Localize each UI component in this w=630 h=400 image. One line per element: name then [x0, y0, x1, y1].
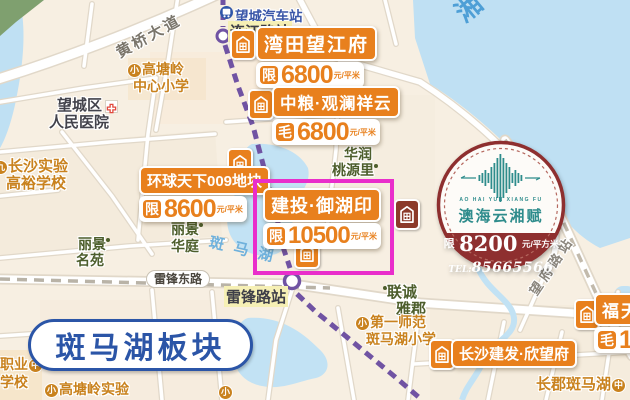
promo-brand-name: 澳海云湘赋	[435, 205, 567, 226]
poi-hospital-line1: 望城区	[57, 97, 102, 114]
poi-lijing-mingyuan-line1: 丽景	[78, 236, 110, 252]
region-badge: 斑马湖板块	[28, 319, 253, 371]
building-icon	[248, 89, 274, 120]
listing-name: 中粮·观澜祥云	[272, 86, 400, 118]
price-value: 1	[619, 329, 630, 351]
price-value: 8600	[164, 198, 216, 220]
poi-dot	[199, 223, 203, 227]
primary-school-icon: 小	[127, 63, 142, 78]
poi-diyishifan-line2: 斑马湖小学	[366, 331, 436, 348]
station-label-leifeng: 雷锋路站	[224, 286, 288, 307]
promo-badge: AO HAI YUN XIANG FU 澳海云湘赋 限 8200 元/平方米 T…	[435, 138, 567, 274]
poi-lijing-huating-line2: 华庭	[171, 238, 199, 254]
middle-school-icon: 中	[611, 378, 626, 393]
nine-year-school-icon: 九	[0, 160, 8, 175]
map-canvas: 黄桥大道 湘 斑马湖 望府路站 望城汽车站 连江路站 雷锋东路 雷锋路站 小高塘…	[0, 0, 630, 400]
listing-name: 环球天下009地块	[139, 166, 270, 195]
road-label-leifengdong: 雷锋东路	[146, 270, 210, 288]
listing-price: 毛 1	[594, 327, 630, 353]
price-unit: 元/平米	[351, 232, 377, 241]
price-unit: 元/平米	[350, 128, 376, 137]
promo-brand-en: AO HAI YUN XIANG FU	[435, 197, 567, 203]
primary-school-icon: 小	[218, 383, 233, 400]
price-prefix: 毛	[276, 123, 294, 141]
primary-school-icon: 小	[44, 383, 59, 398]
poi-changjun-middle: 长郡斑马湖中	[536, 376, 626, 393]
promo-price-value: 8200	[459, 231, 517, 256]
price-value: 6800	[297, 121, 349, 143]
poi-hospital-line2: 人民医院	[49, 114, 109, 131]
listing-name: 福天	[594, 293, 630, 326]
price-value: 10500	[288, 225, 350, 247]
listing-card-wantian: 湾田望江府 限 6800 元/平米	[256, 26, 377, 88]
listing-name: 建投·御湖印	[263, 188, 381, 222]
price-prefix: 限	[260, 66, 278, 84]
promo-tel-number: 85665566	[472, 260, 554, 276]
building-icon	[230, 29, 256, 60]
listing-name: 长沙建发·欣望府	[451, 339, 577, 368]
poi-dot	[106, 238, 110, 242]
listing-card-jianfa: 长沙建发·欣望府	[451, 339, 577, 368]
poi-lijing-huating-line1: 丽景	[171, 221, 203, 237]
poi-gaotangling-central-line1: 小高塘岭	[127, 61, 184, 78]
price-prefix: 毛	[598, 331, 616, 349]
poi-gaotangling-shiyan: 小高塘岭实验	[44, 381, 129, 398]
listing-price: 限 8600 元/平米	[139, 196, 247, 222]
listing-card-huanqiu: 环球天下009地块 限 8600 元/平米	[139, 166, 270, 222]
listing-card-zhongliang: 中粮·观澜祥云 毛 6800 元/平米	[272, 86, 400, 145]
hospital-icon	[105, 100, 118, 113]
poi-zhiye-school-line2: 学校	[0, 374, 28, 391]
listing-price: 限 6800 元/平米	[256, 62, 364, 88]
poi-diyishifan-line1: 小第一师范	[355, 314, 426, 331]
promo-price: 限 8200 元/平方米	[435, 231, 567, 256]
price-unit: 元/平米	[217, 205, 243, 214]
listing-card-futian: 福天 毛 1	[594, 293, 630, 353]
poi-huarun-line2: 桃源里	[332, 162, 378, 178]
listing-price: 限 10500 元/平米	[263, 223, 381, 249]
poi-huarun-line1: 华润	[344, 146, 372, 162]
promo-price-unit: 元/平方米	[522, 239, 558, 249]
price-unit: 元/平米	[334, 71, 360, 80]
promo-tel: TEL:85665566	[435, 257, 567, 276]
poi-shiyan-school-line2: 高裕学校	[6, 175, 66, 192]
price-prefix: 限	[143, 200, 161, 218]
listing-card-jiantou: 建投·御湖印 限 10500 元/平米	[263, 188, 381, 249]
promo-price-prefix: 限	[444, 238, 455, 250]
poi-lijing-mingyuan-line2: 名苑	[76, 252, 104, 268]
poi-shiyan-school-line1: 九长沙实验	[0, 158, 68, 175]
poi-liancheng-line1: 联诚	[383, 285, 417, 301]
price-prefix: 限	[267, 227, 285, 245]
price-value: 6800	[281, 64, 333, 86]
bus-station-icon	[220, 6, 233, 19]
primary-school-icon: 小	[355, 316, 370, 331]
building-icon-red	[394, 199, 420, 230]
promo-tel-label: TEL:	[448, 265, 471, 275]
poi-gaotangling-central-line2: 中心小学	[133, 78, 189, 95]
listing-price: 毛 6800 元/平米	[272, 119, 380, 145]
poi-dot	[374, 164, 378, 168]
listing-name: 湾田望江府	[256, 26, 377, 61]
